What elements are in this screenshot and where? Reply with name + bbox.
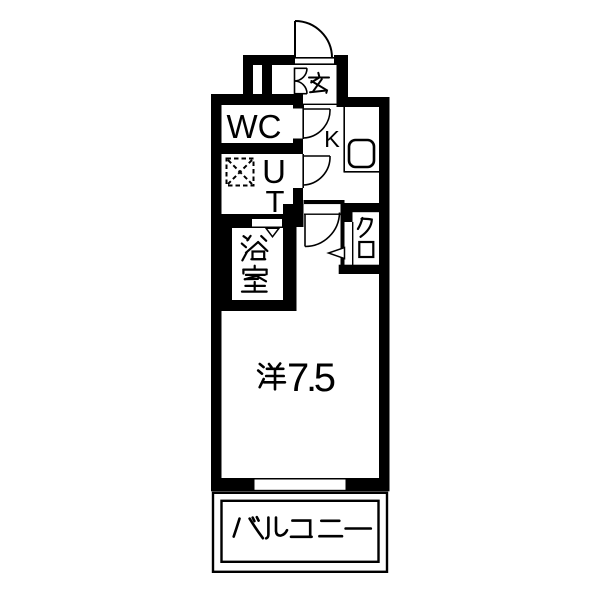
svg-text:K: K [324,126,340,152]
svg-text:T: T [266,184,285,219]
svg-text:WC: WC [227,108,282,145]
svg-text:7.5: 7.5 [287,356,336,400]
